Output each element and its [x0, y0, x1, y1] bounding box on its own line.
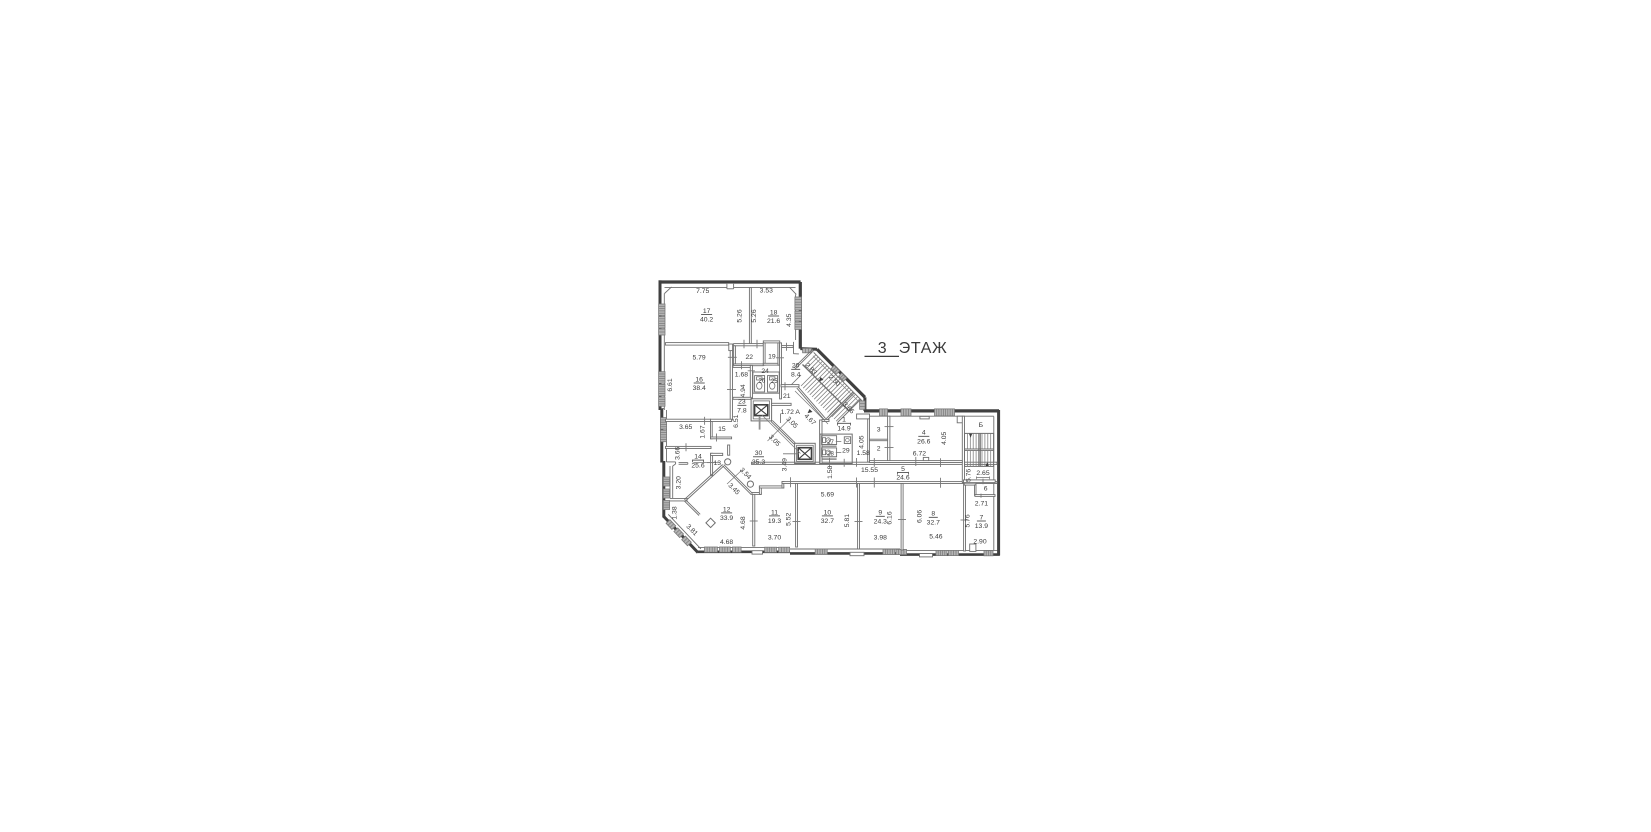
svg-text:26: 26: [759, 378, 766, 384]
svg-text:9: 9: [878, 510, 882, 517]
svg-text:A: A: [795, 409, 800, 416]
svg-text:2.90: 2.90: [973, 538, 986, 545]
svg-text:3: 3: [878, 340, 887, 357]
svg-text:17: 17: [703, 308, 711, 315]
svg-text:5.76: 5.76: [965, 514, 972, 527]
svg-text:5.81: 5.81: [844, 514, 851, 527]
svg-text:28: 28: [827, 451, 834, 457]
svg-text:14: 14: [694, 454, 702, 461]
svg-text:4.94: 4.94: [740, 384, 747, 397]
svg-text:18: 18: [770, 309, 778, 316]
svg-text:13.9: 13.9: [975, 523, 988, 530]
svg-text:23: 23: [738, 399, 746, 406]
svg-text:8.4: 8.4: [791, 372, 801, 379]
svg-text:6.16: 6.16: [887, 511, 894, 524]
svg-text:6.61: 6.61: [667, 378, 674, 391]
svg-text:25.6: 25.6: [691, 462, 704, 469]
svg-text:1.72: 1.72: [781, 409, 794, 416]
svg-text:ЭТАЖ: ЭТАЖ: [899, 340, 948, 357]
svg-text:4.05: 4.05: [859, 435, 866, 448]
svg-text:7.75: 7.75: [696, 288, 709, 295]
svg-text:8: 8: [931, 511, 935, 518]
svg-text:4.05: 4.05: [941, 431, 948, 444]
svg-text:25: 25: [771, 379, 778, 385]
svg-text:32.7: 32.7: [821, 518, 834, 525]
svg-text:5.69: 5.69: [821, 491, 834, 498]
svg-text:14.9: 14.9: [837, 426, 850, 433]
svg-text:19.3: 19.3: [768, 518, 781, 525]
svg-text:3.66: 3.66: [675, 446, 682, 459]
svg-text:5.46: 5.46: [929, 534, 942, 541]
svg-text:1.38: 1.38: [672, 506, 679, 519]
svg-text:6.51: 6.51: [733, 414, 740, 427]
svg-text:22: 22: [746, 354, 754, 361]
svg-text:2: 2: [877, 445, 881, 452]
svg-text:30: 30: [755, 450, 763, 457]
svg-text:4: 4: [922, 430, 926, 437]
svg-text:4.68: 4.68: [720, 539, 733, 546]
svg-text:1.58: 1.58: [857, 450, 870, 457]
svg-text:2.71: 2.71: [975, 500, 988, 507]
svg-text:6.06: 6.06: [917, 510, 924, 523]
svg-text:21.6: 21.6: [767, 318, 780, 325]
svg-text:3.65: 3.65: [679, 424, 692, 431]
svg-text:Б: Б: [979, 422, 984, 429]
svg-text:3.53: 3.53: [760, 287, 773, 294]
svg-text:33.9: 33.9: [720, 515, 733, 522]
svg-text:24.3: 24.3: [874, 519, 887, 526]
svg-text:1.58: 1.58: [827, 465, 834, 478]
svg-text:2.65: 2.65: [976, 470, 989, 477]
svg-text:38.4: 38.4: [693, 385, 706, 392]
svg-text:6.72: 6.72: [913, 451, 926, 458]
svg-text:3.20: 3.20: [676, 476, 683, 489]
svg-text:7.8: 7.8: [737, 408, 747, 415]
svg-text:13: 13: [714, 460, 722, 467]
svg-text:5.26: 5.26: [751, 309, 758, 322]
svg-text:5.26: 5.26: [737, 309, 744, 322]
svg-text:12: 12: [723, 506, 731, 513]
svg-text:26.6: 26.6: [917, 439, 930, 446]
svg-text:4.35: 4.35: [786, 313, 793, 326]
svg-text:3.49: 3.49: [782, 458, 789, 471]
svg-text:24.6: 24.6: [896, 475, 909, 482]
svg-text:1.68: 1.68: [735, 372, 748, 379]
svg-text:5.76: 5.76: [965, 469, 972, 482]
svg-text:10: 10: [824, 509, 832, 516]
svg-text:5: 5: [901, 466, 905, 473]
svg-text:5.52: 5.52: [785, 512, 792, 525]
svg-text:27: 27: [827, 440, 834, 446]
svg-text:1: 1: [842, 417, 846, 424]
svg-text:21: 21: [783, 393, 791, 400]
svg-text:40.2: 40.2: [700, 317, 713, 324]
svg-text:6: 6: [984, 485, 988, 492]
svg-text:3.98: 3.98: [874, 534, 887, 541]
svg-text:20: 20: [792, 363, 800, 370]
svg-text:15.55: 15.55: [861, 467, 878, 474]
svg-text:24: 24: [761, 368, 769, 375]
svg-text:16: 16: [695, 376, 703, 383]
svg-text:15: 15: [718, 426, 726, 433]
svg-text:5.79: 5.79: [692, 354, 705, 361]
svg-text:4.68: 4.68: [740, 516, 747, 529]
svg-text:35.3: 35.3: [752, 459, 765, 466]
svg-text:19: 19: [768, 353, 776, 360]
svg-text:11: 11: [771, 509, 778, 516]
svg-text:29: 29: [842, 448, 850, 455]
svg-text:3: 3: [877, 427, 881, 434]
svg-text:1.67: 1.67: [700, 425, 707, 438]
svg-text:3.70: 3.70: [768, 534, 781, 541]
svg-text:32.7: 32.7: [927, 520, 940, 527]
svg-text:7: 7: [980, 514, 984, 521]
